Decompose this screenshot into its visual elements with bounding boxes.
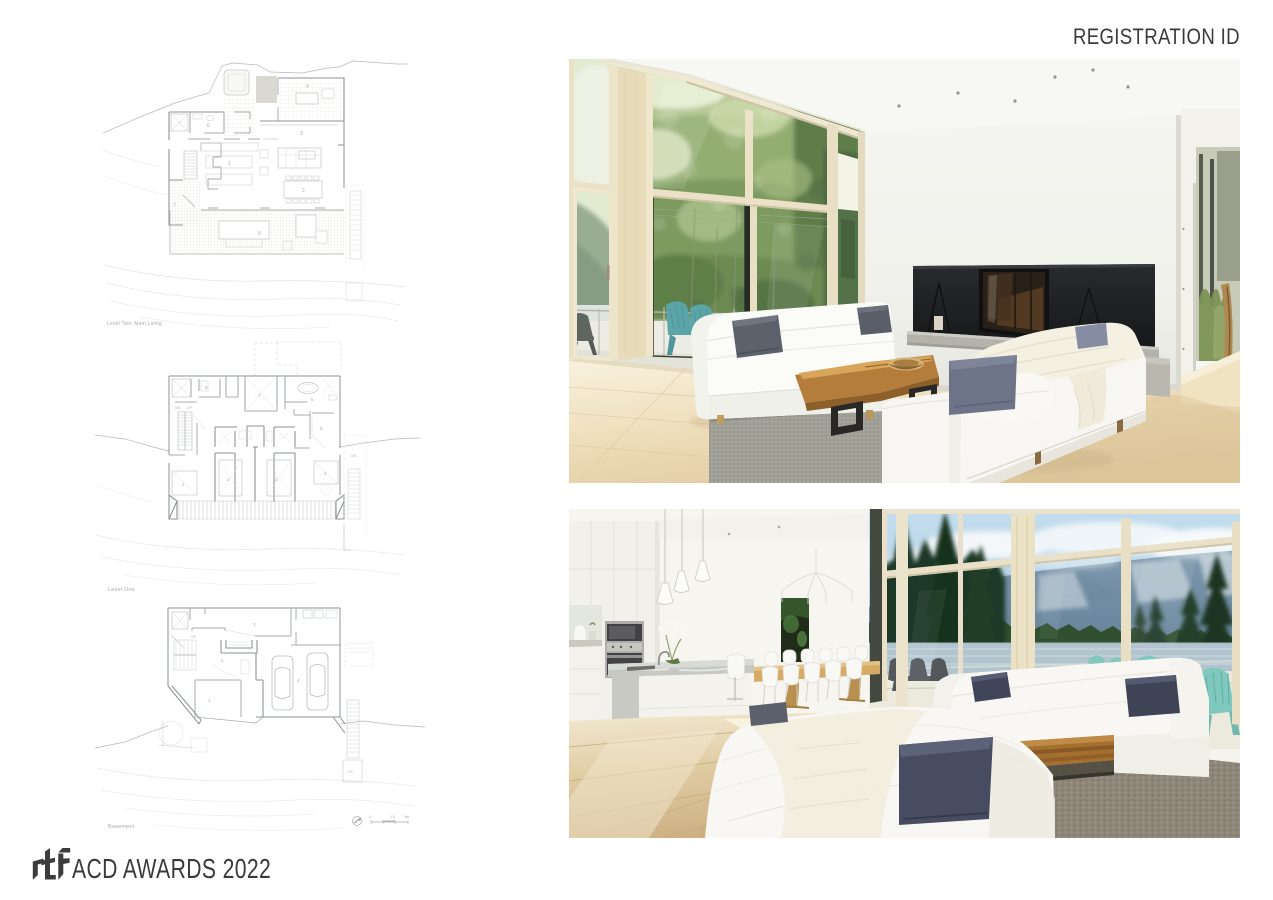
svg-text:DN: DN: [175, 406, 181, 410]
svg-text:Basement: Basement: [108, 824, 135, 830]
svg-text:3m: 3m: [404, 815, 409, 819]
svg-text:8: 8: [205, 385, 208, 390]
svg-text:2: 2: [221, 658, 224, 663]
svg-text:1.5: 1.5: [390, 815, 395, 819]
svg-text:2: 2: [302, 188, 305, 194]
svg-text:UP: UP: [187, 406, 193, 410]
svg-text:UP: UP: [348, 770, 354, 774]
svg-text:0: 0: [369, 815, 371, 819]
svg-text:1: 1: [228, 161, 231, 167]
svg-text:8: 8: [258, 231, 261, 237]
svg-text:5: 5: [320, 426, 323, 431]
svg-text:1: 1: [208, 698, 211, 703]
svg-text:Level One: Level One: [108, 587, 135, 593]
svg-text:4: 4: [306, 84, 309, 90]
svg-text:7: 7: [173, 203, 176, 209]
svg-text:6: 6: [207, 123, 210, 129]
svg-text:3: 3: [300, 131, 303, 137]
svg-text:DN: DN: [351, 454, 357, 458]
svg-text:4: 4: [297, 678, 300, 683]
svg-text:3: 3: [253, 622, 256, 627]
svg-text:6: 6: [311, 397, 314, 402]
svg-text:Level Two: Main Living: Level Two: Main Living: [107, 321, 162, 327]
svg-text:3: 3: [275, 477, 278, 482]
svg-text:UP: UP: [191, 635, 197, 639]
svg-text:4: 4: [324, 471, 327, 476]
